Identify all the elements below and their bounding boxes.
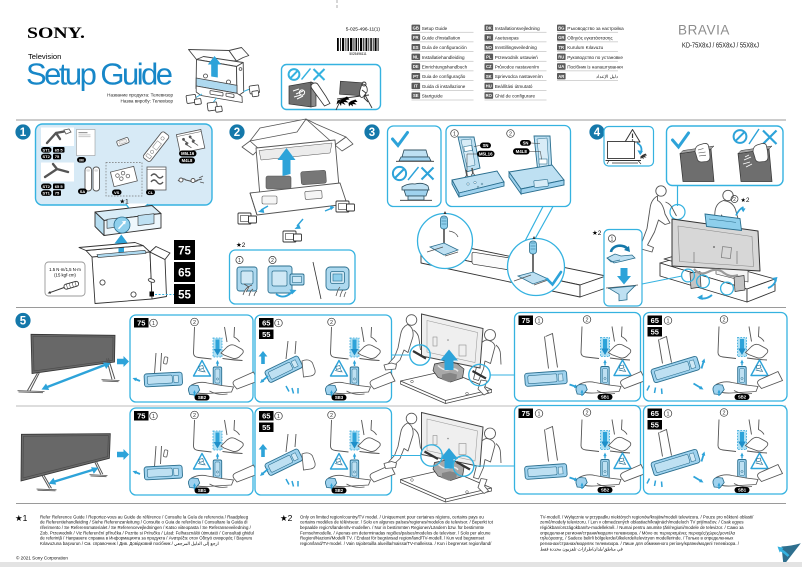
svg-text:Fernsehmodelle. / Apenas em de: Fernsehmodelle. / Apenas em determinadas… [300,530,491,535]
svg-text:Beállítási útmutató: Beállítási útmutató [495,84,533,89]
svg-text:2: 2 [586,411,589,417]
svg-text:NO: NO [486,45,493,50]
svg-text:Название продукта: Телевизор: Название продукта: Телевизор [107,93,173,98]
svg-text:Guia de configuração: Guia de configuração [422,74,466,79]
svg-text:1: 1 [611,237,614,243]
svg-text:3: 3 [369,127,375,139]
svg-text:★1: ★1 [119,199,129,206]
svg-text:Průvodce nastavením: Průvodce nastavením [495,64,540,70]
svg-text:55: 55 [651,420,659,429]
svg-text:1: 1 [453,132,456,138]
svg-text:Refer Reference Guide / Report: Refer Reference Guide / Reportez-vous au… [40,514,249,519]
svg-text:Regioni/Nazioni/Modelli TV. /: Regioni/Nazioni/Modelli TV. / Endast för… [300,536,485,541]
svg-text:5: 5 [20,316,27,328]
svg-text:1: 1 [238,258,241,264]
svg-text:75: 75 [137,411,145,420]
svg-text:75: 75 [137,318,145,327]
svg-text:1: 1 [152,321,155,327]
svg-text:NL: NL [413,54,419,59]
svg-text:Назва виробу: Телевізор: Назва виробу: Телевізор [121,99,174,104]
svg-text:★1: ★1 [15,513,28,523]
svg-text:Only on limited region/country: Only on limited region/country/TV model.… [300,514,484,519]
svg-text:(15 kgf·cm): (15 kgf·cm) [54,273,76,278]
svg-text:Setup Guide: Setup Guide [422,26,448,31]
svg-text:SB2: SB2 [738,394,747,399]
svg-text:IT: IT [414,84,418,89]
svg-text:HU: HU [486,84,492,89]
svg-text:ES: ES [413,45,419,50]
svg-text:země/modely televizoru. / Len: země/modely televizoru. / Len v obmedzen… [540,520,744,525]
svg-text:Οδηγός εγκατάστασης: Οδηγός εγκατάστασης [567,35,613,41]
svg-text:65 5: 65 5 [55,147,64,152]
svg-text:2: 2 [733,197,736,203]
svg-text:Guía de configuración: Guía de configuración [422,45,467,50]
svg-text:Einrichtungshandbuch: Einrichtungshandbuch [422,65,468,70]
svg-text:KD-75X8xJ / 65X8xJ / 55X8xJ: KD-75X8xJ / 65X8xJ / 55X8xJ [682,43,759,50]
svg-text:في مناطق/بلدان/طرازات تلفزيون: في مناطق/بلدان/طرازات تلفزيون محددة فقط [540,546,623,551]
svg-text:ST1: ST1 [43,191,51,196]
svg-text:2: 2 [234,127,240,139]
svg-text:M5L16: M5L16 [479,152,493,157]
svg-text:CZ: CZ [486,64,492,69]
svg-text:UA: UA [558,64,564,69]
svg-text:SA: SA [80,189,86,194]
svg-text:TR: TR [559,45,565,50]
svg-text:© 2021 Sony Corporation: © 2021 Sony Corporation [16,555,68,561]
svg-text:region/land/TV-model. / Vain r: region/land/TV-model. / Vain rajoitetuil… [300,541,492,546]
svg-text:ST2: ST2 [43,154,51,159]
svg-text:регионах/странах/моделях телев: регионах/странах/моделях телевизора. / Л… [540,541,740,546]
svg-text:Asetusopas: Asetusopas [495,36,520,41]
svg-text:2: 2 [330,320,333,326]
svg-text:M4L8: M4L8 [182,158,193,163]
svg-text:FI: FI [487,35,491,40]
svg-text:bepaalde regio's/landen/tv-mod: bepaalde regio's/landen/tv-modellen. / N… [300,525,485,530]
svg-text:75: 75 [522,409,530,418]
svg-text:65: 65 [651,409,659,418]
svg-text:Installatiehandleiding: Installatiehandleiding [422,55,465,60]
svg-text:75: 75 [55,191,60,196]
svg-text:1: 1 [538,412,541,418]
svg-text:SB2: SB2 [335,488,344,493]
svg-text:PL: PL [486,54,492,59]
svg-text:ST2: ST2 [43,184,51,189]
svg-text:SB1: SB1 [198,488,207,493]
svg-text:ST1: ST1 [43,147,51,152]
svg-text:75: 75 [522,316,530,325]
svg-text:4: 4 [594,127,601,139]
svg-text:RU: RU [558,54,564,59]
svg-text:دليل الإعداد: دليل الإعداد [596,74,618,79]
svg-text:SN: SN [483,143,489,148]
svg-text:Startguide: Startguide [422,94,443,99]
svg-text:de referință / Направете справ: de referință / Направете справка в Инфор… [40,536,253,541]
svg-text:BRAVIA: BRAVIA [678,23,732,38]
svg-text:Посібник із налаштування: Посібник із налаштування [567,65,623,70]
svg-text:определени региони/страни/моде: определени региони/страни/модели телевиз… [540,530,736,535]
svg-text:5-025-496-11(1): 5-025-496-11(1) [346,27,381,33]
svg-text:Ghid de configurare: Ghid de configurare [495,94,536,99]
svg-text:de Referentiehandleiding / Sie: de Referentiehandleiding / Siehe Referen… [40,520,247,525]
svg-text:Przewodnik ustawień: Przewodnik ustawień [495,55,539,60]
svg-text:SONY.: SONY. [27,25,85,42]
svg-text:★2: ★2 [280,513,293,523]
svg-text:55: 55 [262,330,270,339]
svg-text:SB1: SB1 [738,487,747,492]
svg-text:FR: FR [413,35,419,40]
svg-text:SB2: SB2 [601,487,610,492]
svg-text:PT: PT [413,74,419,79]
svg-text:régiókban/országokban/tv-model: régiókban/országokban/tv-modelleknél. / … [540,525,744,530]
svg-text:1: 1 [152,414,155,420]
svg-text:τηλεόρασης. / Sadece belirli b: τηλεόρασης. / Sadece belirli bölgelerde/… [540,536,734,541]
svg-text:65: 65 [178,268,191,280]
svg-text:2: 2 [509,132,512,138]
svg-text:certains modèles de téléviseur: certains modèles de téléviseur. / Solo e… [300,520,494,525]
svg-text:1: 1 [20,127,27,139]
svg-text:Guide d'installation: Guide d'installation [422,36,461,41]
svg-text:★2: ★2 [236,242,246,249]
svg-text:GB: GB [413,25,419,30]
svg-text:SK: SK [486,74,492,79]
svg-text:65: 65 [262,318,270,327]
svg-text:2: 2 [330,413,333,419]
svg-text:2: 2 [193,320,196,326]
svg-text:55: 55 [262,423,270,432]
svg-text:1.5 N·m/1,5 N·m: 1.5 N·m/1,5 N·m [49,267,81,272]
svg-text:SB3: SB3 [335,395,344,400]
svg-text:★2: ★2 [592,230,602,237]
svg-text:65 5: 65 5 [55,184,64,189]
svg-text:DK: DK [486,25,492,30]
svg-text:1: 1 [277,321,280,327]
svg-text:Setup Guide: Setup Guide [26,57,173,92]
svg-text:Руководство по установке: Руководство по установке [567,55,623,60]
svg-text:75: 75 [178,246,191,258]
svg-text:2: 2 [193,413,196,419]
svg-text:TV-modell. / Wyłącznie w przyp: TV-modell. / Wyłącznie w przypadku niekt… [540,514,754,519]
svg-text:1: 1 [667,319,670,325]
svg-text:Installationsvejledning: Installationsvejledning [495,26,540,31]
svg-text:Kurulum Kılavuzu: Kurulum Kılavuzu [567,45,603,50]
svg-text:5025496111: 5025496111 [349,52,366,56]
svg-text:VS: VS [114,190,120,195]
svg-text:1: 1 [538,319,541,325]
svg-text:2: 2 [723,318,726,324]
svg-text:SB2: SB2 [198,395,207,400]
svg-text:GR: GR [558,35,564,40]
svg-text:55: 55 [651,327,659,336]
svg-text:55: 55 [178,290,191,302]
svg-text:M5L16: M5L16 [181,151,195,156]
svg-text:1: 1 [277,414,280,420]
svg-text:RO: RO [486,93,493,98]
svg-text:SE: SE [413,93,419,98]
svg-text:★2: ★2 [741,197,751,204]
svg-text:65: 65 [262,411,270,420]
svg-text:SB1: SB1 [601,394,610,399]
svg-text:Innstillingsveiledning: Innstillingsveiledning [495,45,538,50]
svg-text:2: 2 [723,411,726,417]
svg-text:IM: IM [79,157,84,162]
svg-text:DE: DE [413,64,419,69]
svg-text:Ръководство за настройка: Ръководство за настройка [567,25,624,31]
svg-text:75: 75 [55,154,60,159]
svg-text:M4L8: M4L8 [516,149,528,154]
svg-text:1: 1 [667,412,670,418]
svg-text:2: 2 [271,258,274,264]
svg-text:CL: CL [148,190,154,195]
svg-text:65: 65 [651,316,659,325]
svg-text:SN: SN [523,140,529,145]
svg-text:Guida di installazione: Guida di installazione [422,84,466,89]
svg-text:2: 2 [586,318,589,324]
svg-text:BG: BG [558,25,564,30]
svg-text:AR: AR [558,74,564,79]
svg-text:Sprievodca nastavením: Sprievodca nastavením [495,74,543,79]
svg-text:riferimento / Se Referensmater: riferimento / Se Referensmaterialet / Se… [40,525,252,530]
svg-text:Zob. Przewodnik / Viz Referenč: Zob. Przewodnik / Viz Referenční příručk… [40,530,254,535]
